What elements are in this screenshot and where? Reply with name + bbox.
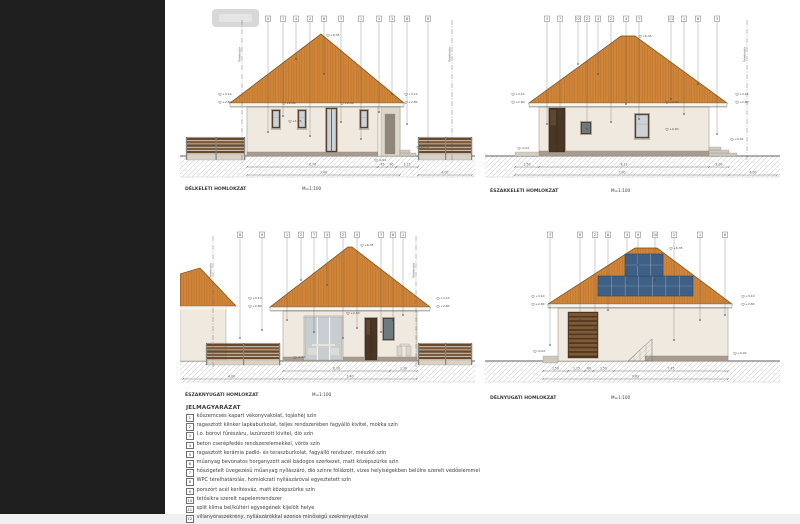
- legend-title: JELMAGYARÁZAT: [186, 405, 516, 411]
- svg-text:+3,10: +3,10: [440, 296, 449, 300]
- legend-item-text: I.o. borovi fűrészáru, lazúrozott kivite…: [197, 432, 314, 438]
- legend-item: 7hőszigetelt üvegezésű műanyag nyílászár…: [186, 469, 516, 477]
- svg-text:DÉLKELETI HOMLOKZAT: DÉLKELETI HOMLOKZAT: [185, 184, 247, 192]
- legend-item: 3I.o. borovi fűrészáru, lazúrozott kivit…: [186, 432, 516, 440]
- svg-text:4,00: 4,00: [228, 375, 235, 379]
- elevation-delkeleti: TelekhatárTelekhatár57426713368+3,10+2,8…: [180, 4, 475, 204]
- svg-text:+6,35: +6,35: [364, 243, 373, 247]
- svg-text:1,30: 1,30: [400, 367, 407, 371]
- svg-text:+0,90: +0,90: [669, 127, 678, 131]
- svg-text:+0,02: +0,02: [420, 145, 429, 149]
- svg-text:+3,10: +3,10: [739, 92, 748, 96]
- viewer: TelekhatárTelekhatár57426713368+3,10+2,8…: [0, 0, 800, 524]
- svg-text:9: 9: [637, 233, 639, 237]
- svg-text:+6,35: +6,35: [330, 33, 339, 37]
- svg-text:4: 4: [626, 233, 628, 237]
- svg-text:-0,02: -0,02: [537, 349, 545, 353]
- document-page: TelekhatárTelekhatár57426713368+3,10+2,8…: [165, 0, 800, 514]
- svg-text:9: 9: [261, 233, 263, 237]
- svg-text:4: 4: [326, 233, 328, 237]
- svg-text:60: 60: [587, 367, 591, 371]
- legend-item-text: műanyag bevonatos horganyzott acél bádog…: [197, 460, 399, 466]
- legend-item: 4beton cserépfedés rendszerelemekkel, vö…: [186, 442, 516, 450]
- svg-text:3: 3: [391, 17, 393, 21]
- legend-item-number: 9: [186, 488, 194, 496]
- svg-text:M=1:100: M=1:100: [312, 392, 332, 397]
- legend-item-text: ragasztott klinker lapkaburkolat, teljes…: [197, 423, 398, 429]
- svg-text:8: 8: [579, 233, 581, 237]
- legend: JELMAGYARÁZAT 1kőszemcsés kapart vékonyv…: [186, 405, 516, 524]
- svg-text:7,40: 7,40: [347, 375, 354, 379]
- svg-text:1,50: 1,50: [524, 163, 531, 167]
- svg-text:4,00: 4,00: [750, 171, 757, 175]
- svg-text:+2,40: +2,40: [669, 100, 678, 104]
- svg-text:3: 3: [716, 17, 718, 21]
- legend-item-text: hőszigetelt üvegezésű műanyag nyílászáró…: [197, 469, 480, 475]
- svg-text:45: 45: [381, 163, 385, 167]
- svg-text:ÉSZAKNYUGATI HOMLOKZAT: ÉSZAKNYUGATI HOMLOKZAT: [185, 390, 259, 398]
- legend-item-text: beton cserépfedés rendszerelemekkel, vör…: [197, 442, 320, 448]
- svg-text:8: 8: [427, 17, 429, 21]
- legend-item: 6műanyag bevonatos horganyzott acél bádo…: [186, 460, 516, 468]
- legend-item: 8WPC térelhatárolás, homlokzati nyílászá…: [186, 478, 516, 486]
- svg-text:+0,02: +0,02: [734, 137, 743, 141]
- svg-text:4: 4: [295, 17, 297, 21]
- legend-item-text: porszórt acél kerítésváz, matt középszür…: [197, 488, 315, 494]
- svg-text:-0,02: -0,02: [378, 158, 386, 162]
- svg-text:6,70: 6,70: [309, 163, 316, 167]
- svg-text:1,00: 1,00: [716, 163, 723, 167]
- svg-text:7: 7: [282, 17, 284, 21]
- svg-text:8: 8: [239, 233, 241, 237]
- svg-text:+2,80: +2,80: [252, 304, 261, 308]
- elevation-delnyugati: 38264910216+3,10+2,80+3,10+2,80+6,35-0,0…: [485, 220, 780, 420]
- svg-text:1,15: 1,15: [404, 163, 411, 167]
- svg-text:Telekhatár: Telekhatár: [412, 262, 416, 279]
- svg-text:+3,10: +3,10: [745, 294, 754, 298]
- svg-text:-0,02: -0,02: [521, 146, 529, 150]
- svg-text:2: 2: [342, 233, 344, 237]
- svg-text:5: 5: [356, 233, 358, 237]
- svg-text:1: 1: [402, 233, 404, 237]
- svg-text:11: 11: [669, 17, 673, 21]
- svg-text:9,63: 9,63: [632, 375, 639, 379]
- legend-item-text: tetősíkra szerelt napelemrendszer: [197, 497, 282, 503]
- legend-item-number: 6: [186, 460, 194, 468]
- svg-text:+0,02: +0,02: [737, 351, 746, 355]
- svg-text:6: 6: [607, 233, 609, 237]
- svg-text:2: 2: [610, 17, 612, 21]
- legend-items: 1kőszemcsés kapart vékonyvakolat, tojásh…: [186, 414, 516, 523]
- svg-text:1,15: 1,15: [573, 367, 580, 371]
- svg-text:2: 2: [309, 17, 311, 21]
- legend-item-number: 5: [186, 451, 194, 459]
- svg-text:+6,35: +6,35: [642, 34, 651, 38]
- legend-item-number: 4: [186, 442, 194, 450]
- svg-text:7: 7: [559, 17, 561, 21]
- legend-item: 10tetősíkra szerelt napelemrendszer: [186, 497, 516, 505]
- svg-text:+2,80: +2,80: [222, 100, 231, 104]
- svg-text:5: 5: [546, 17, 548, 21]
- svg-text:+3,10: +3,10: [252, 296, 261, 300]
- svg-text:3: 3: [549, 233, 551, 237]
- svg-text:10: 10: [653, 233, 657, 237]
- svg-text:1: 1: [683, 17, 685, 21]
- svg-text:7,45: 7,45: [668, 367, 675, 371]
- svg-text:2: 2: [673, 233, 675, 237]
- legend-item-number: 7: [186, 469, 194, 477]
- legend-item-text: split klíma bel/kültéri egységének kijel…: [197, 506, 315, 512]
- svg-text:+2,80: +2,80: [739, 100, 748, 104]
- legend-item-text: WPC térelhatárolás, homlokzati nyílászár…: [197, 478, 352, 484]
- legend-item: 11split klíma bel/kültéri egységének kij…: [186, 506, 516, 514]
- svg-text:+2,80: +2,80: [515, 100, 524, 104]
- svg-text:3: 3: [378, 17, 380, 21]
- svg-text:5: 5: [267, 17, 269, 21]
- legend-item-text: kőszemcsés kapart vékonyvakolat, tojáshé…: [197, 414, 317, 420]
- legend-item: 1kőszemcsés kapart vékonyvakolat, tojásh…: [186, 414, 516, 422]
- svg-text:2: 2: [300, 233, 302, 237]
- svg-text:2: 2: [594, 233, 596, 237]
- legend-item: 12villanyóraszekrény, nyílászárókkal azo…: [186, 515, 516, 523]
- svg-text:+6,35: +6,35: [673, 246, 682, 250]
- svg-text:2: 2: [586, 17, 588, 21]
- svg-text:1: 1: [360, 17, 362, 21]
- svg-text:+3,10: +3,10: [222, 92, 231, 96]
- svg-text:M=1:100: M=1:100: [302, 186, 322, 191]
- svg-text:DÉLNYUGATI HOMLOKZAT: DÉLNYUGATI HOMLOKZAT: [490, 393, 557, 401]
- legend-item: 9porszórt acél kerítésváz, matt középszü…: [186, 488, 516, 496]
- svg-text:+2,80: +2,80: [535, 302, 544, 306]
- svg-text:7,40: 7,40: [320, 171, 327, 175]
- svg-text:4,00: 4,00: [442, 171, 449, 175]
- legend-item-number: 12: [186, 515, 194, 523]
- svg-text:Telekhatár: Telekhatár: [448, 46, 452, 63]
- viewer-sidebar: [0, 0, 165, 514]
- svg-text:+1,25: +1,25: [292, 119, 301, 123]
- legend-item: 2ragasztott klinker lapkaburkolat, telje…: [186, 423, 516, 431]
- legend-item: 5ragasztott kerámia padló- és teraszburk…: [186, 451, 516, 459]
- svg-text:+2,40: +2,40: [350, 311, 359, 315]
- svg-text:1,50: 1,50: [600, 367, 607, 371]
- svg-text:+3,10: +3,10: [408, 92, 417, 96]
- svg-text:6: 6: [392, 233, 394, 237]
- svg-text:Telekhatár: Telekhatár: [238, 46, 242, 63]
- legend-item-number: 1: [186, 414, 194, 422]
- svg-text:+2,40: +2,40: [344, 101, 353, 105]
- svg-text:M=1:100: M=1:100: [611, 395, 631, 400]
- svg-text:+3,10: +3,10: [535, 294, 544, 298]
- svg-text:6: 6: [724, 233, 726, 237]
- legend-item-number: 11: [186, 506, 194, 514]
- elevation-eszakkeleti: Telekhatár57122424711163+3,10+2,80+3,10+…: [485, 4, 780, 204]
- svg-text:4: 4: [625, 17, 627, 21]
- svg-text:6: 6: [323, 17, 325, 21]
- svg-text:+2,80: +2,80: [440, 304, 449, 308]
- svg-text:Telekhatár: Telekhatár: [743, 46, 747, 63]
- svg-text:8,13: 8,13: [621, 163, 628, 167]
- legend-item-text: villanyóraszekrény, nyílászárókkal azono…: [197, 515, 369, 521]
- svg-text:+2,80: +2,80: [408, 100, 417, 104]
- legend-item-number: 3: [186, 432, 194, 440]
- legend-item-number: 8: [186, 478, 194, 486]
- svg-text:6,10: 6,10: [333, 367, 340, 371]
- svg-text:12: 12: [576, 17, 580, 21]
- legend-item-number: 10: [186, 497, 194, 505]
- svg-text:+2,40: +2,40: [286, 101, 295, 105]
- svg-text:7,90: 7,90: [619, 171, 626, 175]
- svg-text:6: 6: [697, 17, 699, 21]
- elevation-eszaknyugati: TelekhatárTelekhatár89127425761+3,10+2,8…: [180, 220, 475, 420]
- svg-text:+2,80: +2,80: [745, 302, 754, 306]
- svg-text:1: 1: [286, 233, 288, 237]
- svg-text:4: 4: [597, 17, 599, 21]
- svg-text:6: 6: [406, 17, 408, 21]
- svg-text:M=1:100: M=1:100: [611, 188, 631, 193]
- svg-text:7: 7: [380, 233, 382, 237]
- svg-text:-0,02: -0,02: [297, 355, 305, 359]
- legend-item-number: 2: [186, 423, 194, 431]
- svg-text:7: 7: [638, 17, 640, 21]
- svg-text:7: 7: [313, 233, 315, 237]
- svg-text:7: 7: [340, 17, 342, 21]
- legend-item-text: ragasztott kerámia padló- és teraszburko…: [197, 451, 387, 457]
- svg-text:90: 90: [390, 163, 394, 167]
- svg-text:ÉSZAKKELETI HOMLOKZAT: ÉSZAKKELETI HOMLOKZAT: [490, 186, 559, 194]
- svg-text:+3,10: +3,10: [515, 92, 524, 96]
- svg-text:1,50: 1,50: [552, 367, 559, 371]
- svg-text:Telekhatár: Telekhatár: [209, 262, 213, 279]
- svg-text:1: 1: [699, 233, 701, 237]
